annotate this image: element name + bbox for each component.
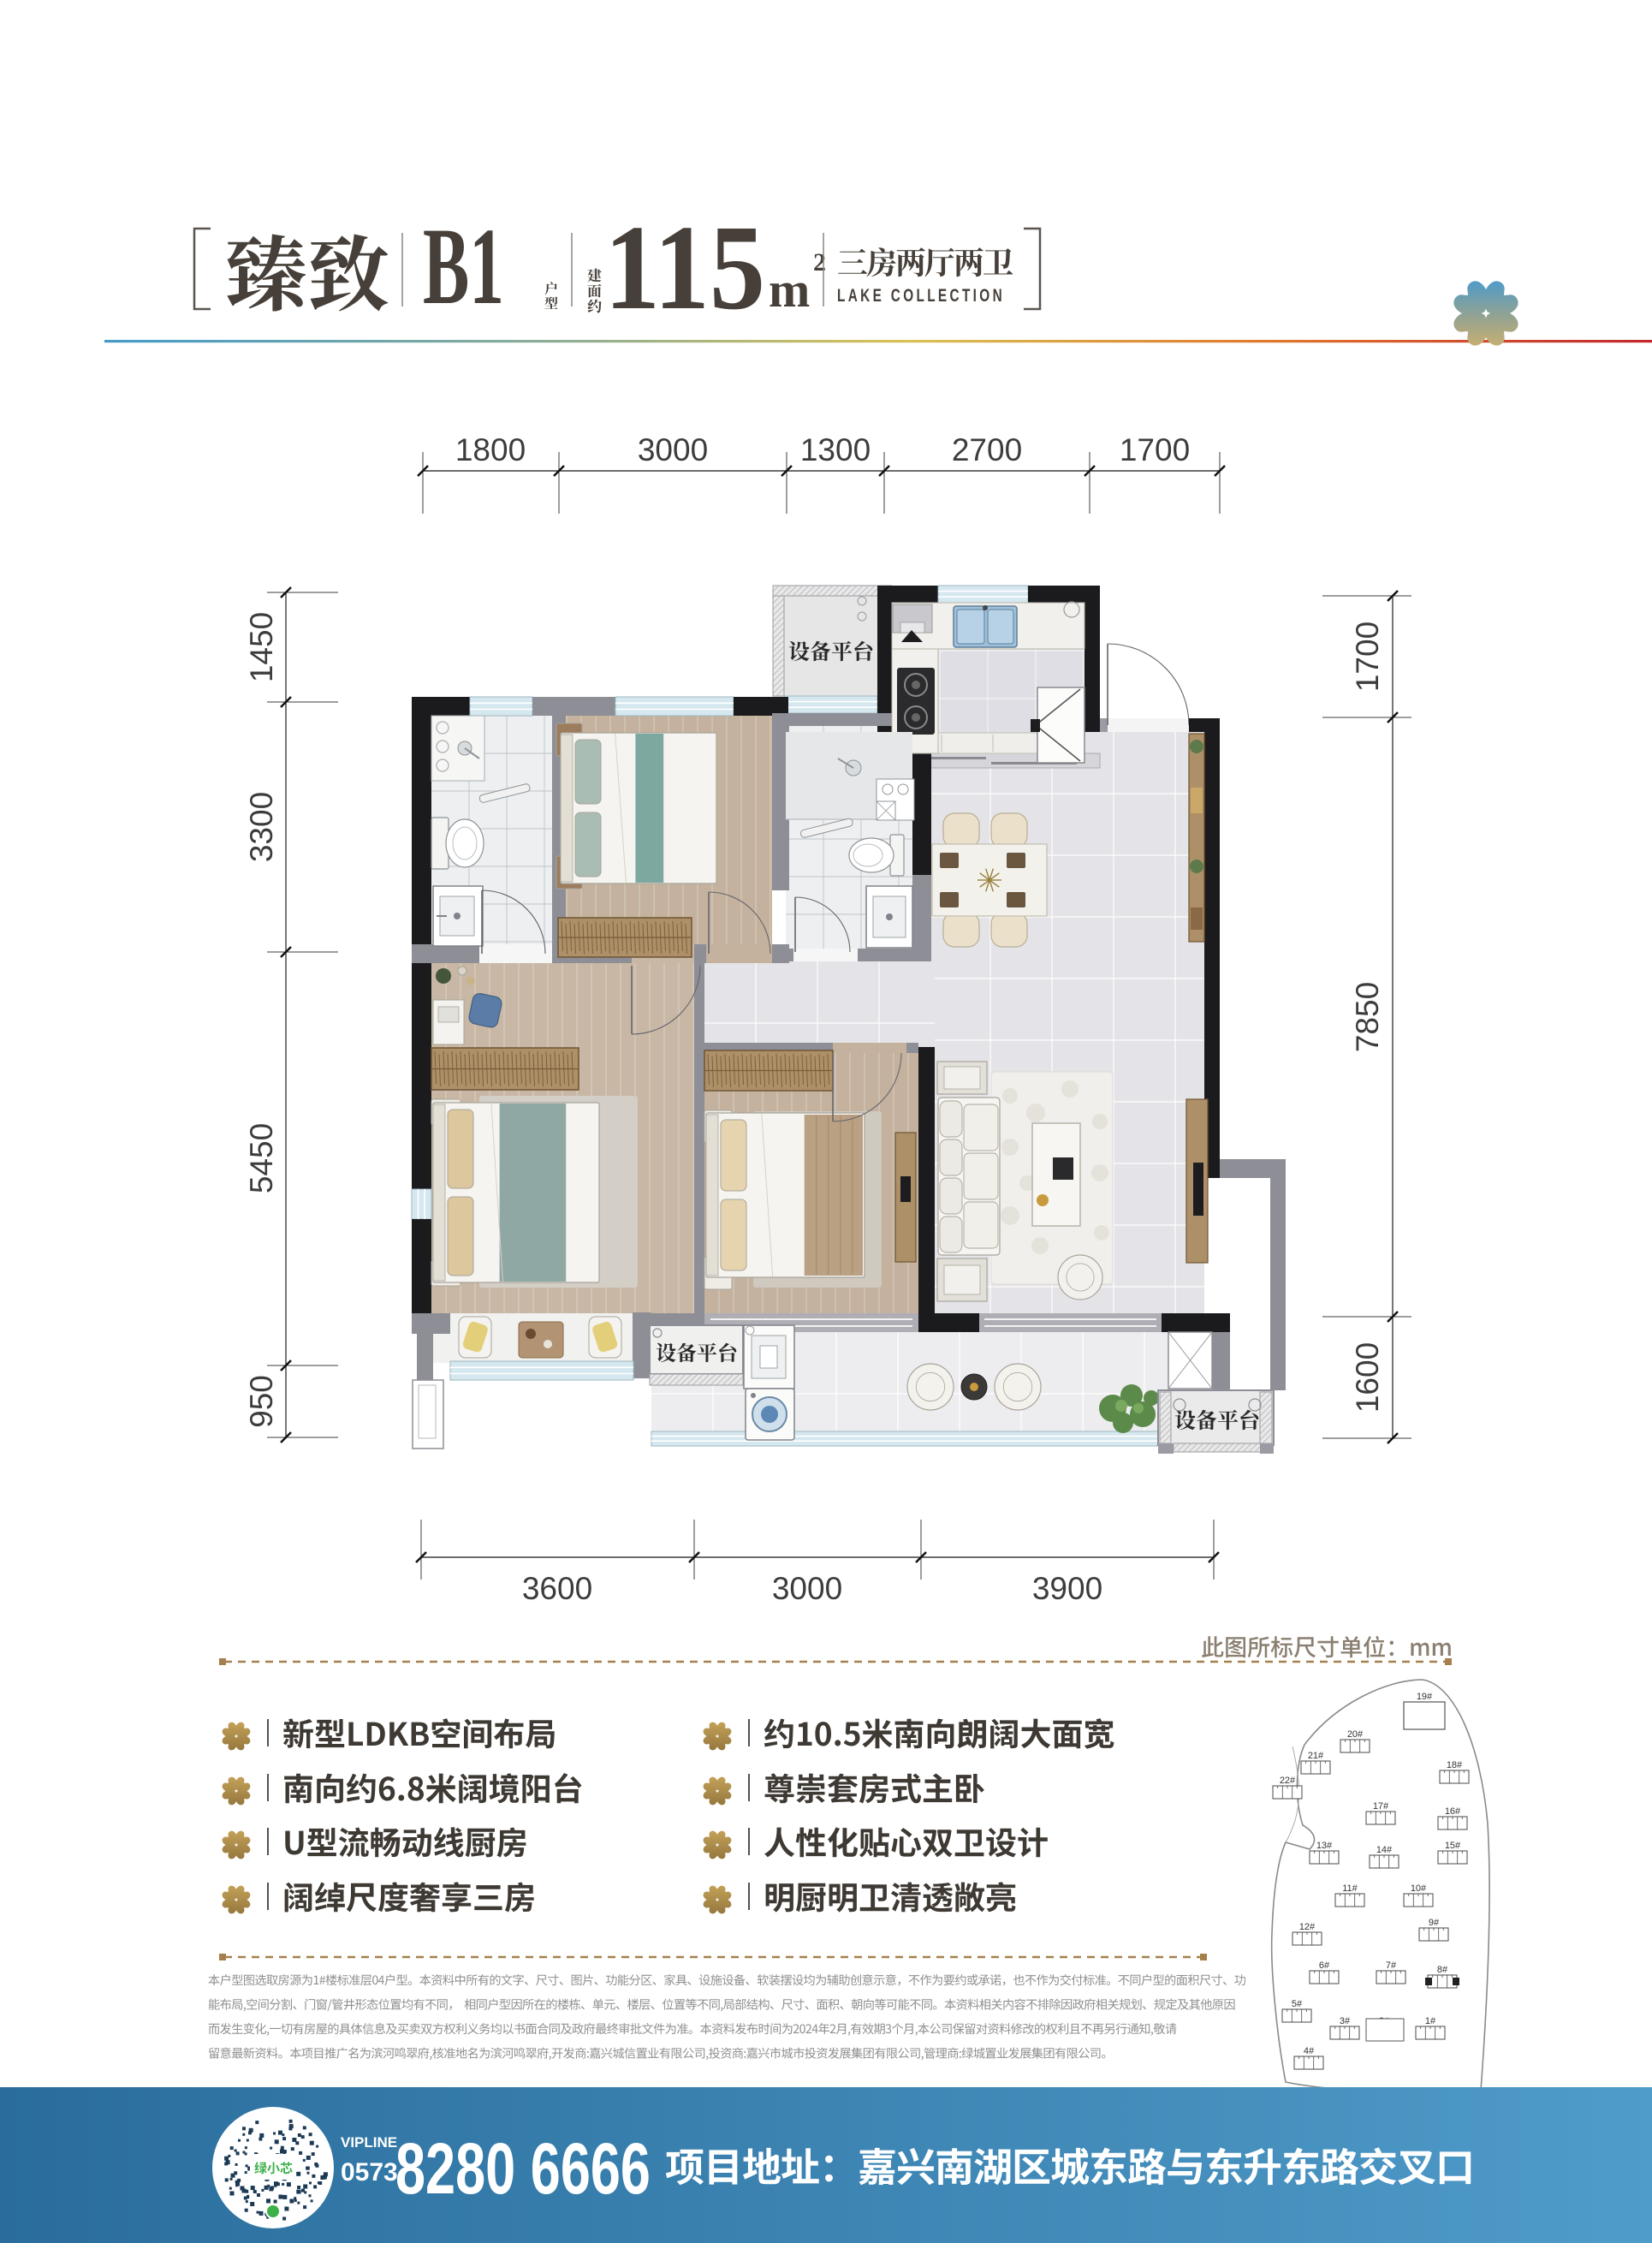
svg-text:12#: 12# — [1299, 1922, 1316, 1932]
svg-text:21#: 21# — [1308, 1751, 1324, 1761]
svg-text:115: 115 — [604, 199, 765, 335]
svg-text:9#: 9# — [1429, 1918, 1440, 1928]
svg-text:18#: 18# — [1447, 1760, 1463, 1770]
svg-text:16#: 16# — [1445, 1806, 1461, 1817]
svg-text:1#: 1# — [1425, 2016, 1436, 2026]
svg-text:8280 6666: 8280 6666 — [395, 2128, 651, 2209]
svg-text:3#: 3# — [1340, 2016, 1351, 2026]
svg-text:3600: 3600 — [522, 1571, 592, 1606]
svg-text:3300: 3300 — [244, 792, 279, 862]
svg-text:1700: 1700 — [1120, 432, 1190, 467]
svg-text:19#: 19# — [1417, 1692, 1433, 1702]
svg-text:1300: 1300 — [800, 432, 871, 467]
svg-text:4#: 4# — [1304, 2046, 1315, 2056]
svg-text:11#: 11# — [1342, 1883, 1358, 1894]
svg-text:14#: 14# — [1376, 1845, 1393, 1855]
svg-text:7#: 7# — [1386, 1960, 1397, 1971]
svg-text:22#: 22# — [1280, 1776, 1296, 1786]
svg-text:3900: 3900 — [1032, 1571, 1102, 1606]
svg-text:8#: 8# — [1437, 1965, 1448, 1975]
svg-text:LAKE COLLECTION: LAKE COLLECTION — [837, 286, 1005, 306]
svg-text:13#: 13# — [1316, 1841, 1333, 1851]
svg-text:0573: 0573 — [341, 2158, 398, 2186]
svg-text:10#: 10# — [1411, 1883, 1427, 1894]
svg-text:1700: 1700 — [1350, 622, 1385, 692]
svg-text:6#: 6# — [1319, 1960, 1330, 1971]
svg-text:950: 950 — [244, 1375, 279, 1428]
svg-text:VIPLINE: VIPLINE — [341, 2134, 397, 2151]
svg-text:1600: 1600 — [1350, 1342, 1385, 1413]
svg-text:1800: 1800 — [455, 432, 526, 467]
svg-text:20#: 20# — [1347, 1729, 1364, 1740]
svg-text:1450: 1450 — [244, 612, 279, 682]
svg-text:15#: 15# — [1445, 1841, 1461, 1851]
svg-text:17#: 17# — [1373, 1801, 1389, 1812]
svg-text:3000: 3000 — [772, 1571, 842, 1606]
svg-text:B1: B1 — [423, 205, 504, 327]
svg-text:5450: 5450 — [244, 1123, 279, 1193]
svg-text:m: m — [769, 262, 810, 318]
svg-text:5#: 5# — [1292, 1999, 1303, 2009]
svg-text:2700: 2700 — [952, 432, 1022, 467]
svg-text:3000: 3000 — [638, 432, 708, 467]
svg-text:7850: 7850 — [1350, 982, 1385, 1052]
